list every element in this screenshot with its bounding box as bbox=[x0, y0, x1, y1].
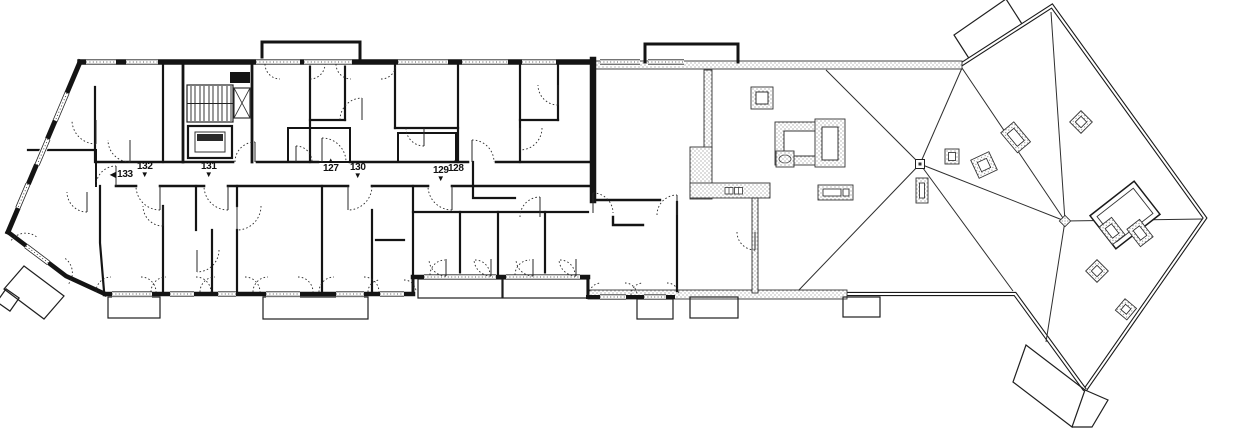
window-diagonal bbox=[24, 243, 51, 265]
roof-chimney-small-2 bbox=[971, 152, 998, 179]
entry-arrow-down-icon: ▼ bbox=[437, 175, 445, 182]
window bbox=[522, 59, 556, 66]
door-arc-131 bbox=[204, 186, 228, 210]
stair-treads bbox=[187, 86, 233, 121]
apartment-number: 133 bbox=[117, 170, 133, 179]
window bbox=[462, 59, 508, 66]
stair-core bbox=[187, 72, 250, 158]
apartment-label-129: 129 ▼ bbox=[433, 166, 449, 182]
window bbox=[648, 59, 684, 66]
window bbox=[218, 291, 236, 298]
window bbox=[304, 59, 352, 66]
door-arc-129 bbox=[428, 186, 452, 210]
window bbox=[170, 291, 194, 298]
roof-ridge-node-east bbox=[1059, 215, 1070, 226]
apartment-label-131: 131 ▼ bbox=[201, 162, 217, 178]
architectural-drawing-canvas: ◀ 133 132 ▼ 131 ▼ ▲ 127 130 ▼ 129 ▼ ▲ 12… bbox=[0, 0, 1250, 428]
balcony bbox=[503, 279, 587, 298]
window bbox=[398, 59, 448, 66]
door-arc bbox=[237, 206, 261, 230]
window bbox=[600, 59, 640, 66]
window bbox=[86, 59, 116, 66]
terrace-chimney-block bbox=[775, 119, 845, 167]
window-door bbox=[506, 274, 580, 281]
door-arc-132 bbox=[136, 186, 160, 210]
terrace-parapet-walls bbox=[588, 61, 962, 299]
door-arc bbox=[340, 98, 362, 120]
shaft-with-cross bbox=[234, 88, 250, 118]
window bbox=[126, 59, 158, 66]
window bbox=[266, 291, 300, 298]
roof-ridge-node-west bbox=[916, 160, 925, 169]
french-door-pair bbox=[319, 277, 379, 292]
apartment-label-132: 132 ▼ bbox=[137, 162, 153, 178]
apartment-number: 128 bbox=[448, 164, 464, 173]
door-arc bbox=[72, 120, 96, 144]
balcony bbox=[263, 297, 368, 319]
wc-box bbox=[288, 128, 350, 162]
window-door bbox=[424, 274, 496, 281]
door-arc-128 bbox=[472, 140, 494, 162]
terrace-vent-box bbox=[818, 185, 853, 200]
floor-plan-drawing bbox=[0, 0, 1250, 428]
balcony bbox=[108, 297, 160, 318]
entry-arrow-down-icon: ▼ bbox=[205, 171, 213, 178]
balcony bbox=[637, 299, 673, 319]
door-arc bbox=[67, 192, 87, 212]
terrace-skylight-square bbox=[751, 87, 773, 109]
balcony-tip bbox=[0, 289, 19, 311]
french-door-pair bbox=[96, 277, 156, 292]
window bbox=[380, 291, 404, 298]
elevator bbox=[188, 126, 232, 158]
balcony bbox=[690, 297, 738, 318]
entry-arrow-left-icon: ◀ bbox=[110, 171, 116, 178]
window-diagonal bbox=[15, 183, 32, 210]
window-diagonal bbox=[34, 138, 51, 167]
door-arc bbox=[406, 128, 424, 146]
entry-arrow-down-icon: ▼ bbox=[354, 172, 362, 179]
french-door-pair-diagonal bbox=[11, 226, 79, 284]
door-arc bbox=[520, 128, 542, 150]
roof-tail-step bbox=[1072, 390, 1108, 427]
roof-eave-bottom bbox=[845, 294, 1085, 390]
roof-chimney-small-1 bbox=[945, 149, 959, 164]
roof-skylight-diamond-3 bbox=[1115, 299, 1136, 320]
door-arc bbox=[197, 250, 219, 272]
french-door-pair bbox=[265, 64, 325, 79]
window bbox=[256, 59, 300, 66]
door-arc-130 bbox=[348, 186, 372, 210]
apartment-number: 127 bbox=[323, 164, 339, 173]
window bbox=[600, 294, 626, 301]
kitchen-wall-stub bbox=[613, 217, 643, 225]
apartment-label-127: ▲ 127 bbox=[323, 157, 339, 173]
door-arc bbox=[538, 85, 558, 105]
door-arc bbox=[516, 259, 533, 276]
roof-tail-lower bbox=[1013, 345, 1085, 427]
roof-skylight-diamond-2 bbox=[1086, 260, 1109, 283]
balcony bbox=[843, 297, 880, 317]
apartment-label-133: ◀ 133 bbox=[110, 170, 133, 179]
apartment-label-128: ▲ 128 bbox=[448, 157, 464, 173]
door-arc bbox=[520, 197, 540, 217]
french-door-pair bbox=[253, 277, 313, 292]
windows bbox=[15, 59, 684, 301]
window-diagonal bbox=[52, 92, 70, 122]
terrace-wall-vertical bbox=[704, 70, 712, 148]
window bbox=[336, 291, 364, 298]
door-arc bbox=[108, 140, 130, 162]
apartment-label-130: 130 ▼ bbox=[350, 163, 366, 179]
outer-wall-lower-left-diagonal bbox=[8, 232, 105, 294]
roof-skylight-diamond bbox=[1070, 111, 1093, 134]
balcony-rotated bbox=[4, 266, 64, 319]
entry-arrow-down-icon: ▼ bbox=[141, 171, 149, 178]
roof-chimney-small-3 bbox=[1001, 122, 1031, 153]
window bbox=[112, 291, 152, 298]
roof-vent-stack bbox=[916, 178, 928, 203]
window bbox=[644, 294, 666, 301]
balcony bbox=[418, 279, 502, 298]
door-arc bbox=[657, 195, 677, 215]
duct-solid bbox=[230, 72, 250, 83]
corridor-walls bbox=[96, 150, 593, 186]
